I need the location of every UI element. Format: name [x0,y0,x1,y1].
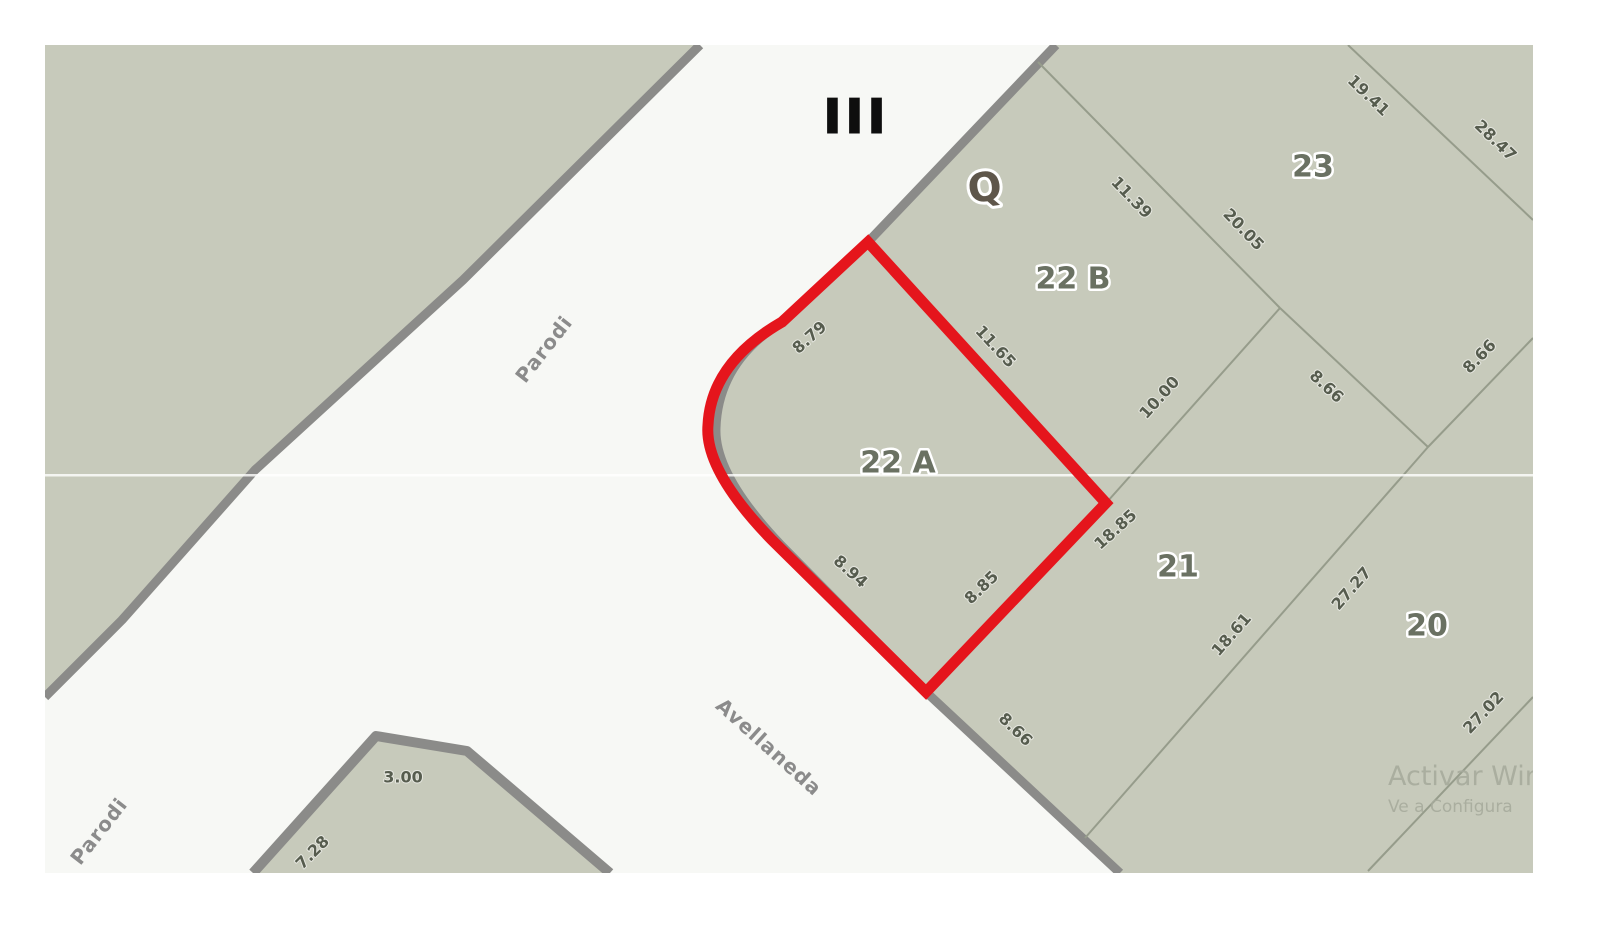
block-letter-q: Q [965,163,1005,213]
lot-label-22b: 22 B [1035,262,1110,297]
windows-activation-watermark-line2: Ve a Configura [1388,797,1513,817]
section-marker: III [824,90,890,144]
tile-seam-line [45,474,1533,477]
cadastral-map: Activar Win Ve a Configura III Q Parodi … [0,0,1603,950]
lot-label-20: 20 [1406,609,1448,644]
lot-label-23: 23 [1292,150,1334,185]
lot-label-21: 21 [1157,550,1199,585]
measurement-3-00: 3.00 [383,768,422,787]
windows-activation-watermark-line1: Activar Win [1388,761,1542,792]
lot-label-22a: 22 A [860,446,936,481]
